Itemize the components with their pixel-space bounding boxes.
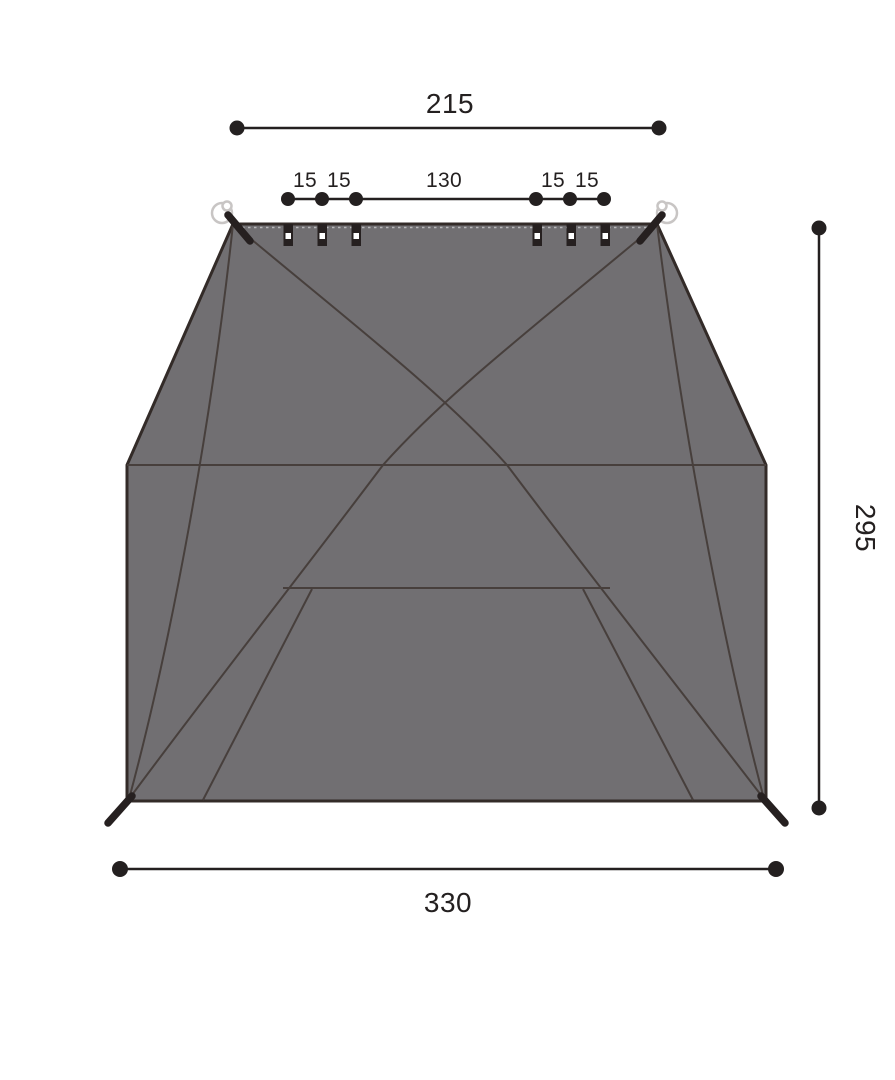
segment-label-1: 15 <box>293 169 317 192</box>
dimension-dot <box>349 192 363 206</box>
segment-label-2: 15 <box>327 169 351 192</box>
dimension-dot <box>281 192 295 206</box>
segment-label-5: 15 <box>575 169 599 192</box>
dimension-endpoint-dot <box>768 861 784 877</box>
right-stake-icon <box>761 796 785 823</box>
attachment-tab <box>352 224 362 246</box>
tent-diagram-canvas: 215 15 15 130 15 15 <box>0 0 895 1080</box>
left-stake-icon <box>108 796 132 823</box>
segment-label-4: 15 <box>541 169 565 192</box>
dimension-dot <box>597 192 611 206</box>
attachment-tab <box>601 224 611 246</box>
base-width-label: 330 <box>424 887 472 918</box>
tab-spacing-dimension: 15 15 130 15 15 <box>281 169 611 206</box>
dimension-dot <box>563 192 577 206</box>
ridge-width-label: 215 <box>426 88 474 119</box>
segment-label-3: 130 <box>426 169 462 192</box>
side-height-label: 295 <box>850 504 881 552</box>
side-height-dimension: 295 <box>812 221 882 816</box>
dimension-endpoint-dot <box>652 121 667 136</box>
attachment-tab <box>533 224 543 246</box>
dimension-dot <box>315 192 329 206</box>
dimension-endpoint-dot <box>812 801 827 816</box>
left-corner-small-ring-icon <box>223 202 232 211</box>
dimension-dot <box>529 192 543 206</box>
attachment-tab <box>318 224 328 246</box>
dimension-endpoint-dot <box>112 861 128 877</box>
attachment-tab <box>284 224 294 246</box>
dimension-endpoint-dot <box>230 121 245 136</box>
attachment-tab <box>567 224 577 246</box>
right-corner-small-ring-icon <box>658 202 667 211</box>
base-width-dimension: 330 <box>112 861 784 918</box>
ridge-width-dimension: 215 <box>230 88 667 136</box>
tent-spec-diagram-page: 215 15 15 130 15 15 <box>0 0 895 1080</box>
tent-body-group <box>127 224 766 801</box>
dimension-endpoint-dot <box>812 221 827 236</box>
